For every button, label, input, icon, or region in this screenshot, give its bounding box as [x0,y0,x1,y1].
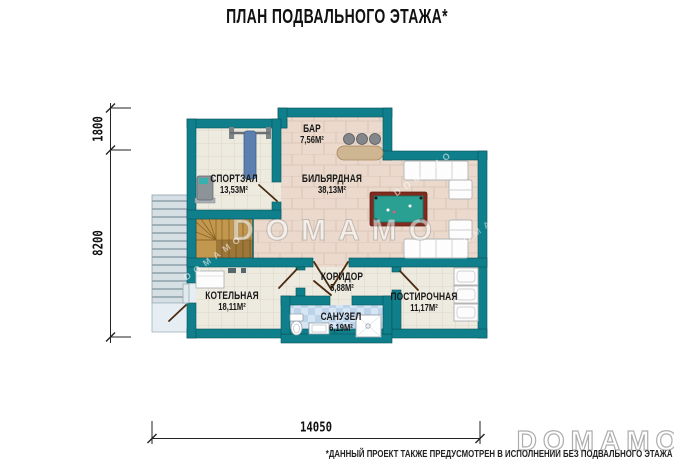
room-label-boiler: КОТЕЛЬНАЯ 18,11М² [205,291,259,313]
room-label-gym: СПОРТЗАЛ 13,53М² [210,174,258,196]
room-name: СПОРТЗАЛ [210,174,258,185]
exterior-stairs [152,195,188,332]
room-label-laundry: ПОСТИРОЧНАЯ 11,17М² [390,292,457,314]
toilet [290,314,303,335]
room-area: 13,53М² [210,185,258,196]
dimension-bottom: 14050 [300,421,332,436]
room-area: 7,56М² [300,135,324,146]
room-name: САНУЗЕЛ [321,312,362,323]
bar-stools [344,134,381,145]
room-area: 18,11М² [205,302,259,313]
room-area: 38,13М² [302,185,362,196]
room-label-bathroom: САНУЗЕЛ 6,19М² [321,312,362,334]
room-label-bar: БАР 7,56М² [300,124,324,146]
room-label-billiard: БИЛЬЯРДНАЯ 38,13М² [302,174,362,196]
entrance-door-leaf [183,284,189,303]
room-name: КОРИДОР [321,272,363,283]
room-name: БИЛЬЯРДНАЯ [302,174,362,185]
interior-stairs [196,219,254,258]
room-name: БАР [300,124,324,135]
room-label-corridor: КОРИДОР 5,88М² [321,272,363,294]
dimension-left-top: 1800 [92,116,107,142]
room-area: 5,88М² [321,283,363,294]
room-name: ПОСТИРОЧНАЯ [390,292,457,303]
stairs-edge [252,219,254,258]
bar-counter [337,146,383,160]
footnote: *ДАННЫЙ ПРОЕКТ ТАКЖЕ ПРЕДУСМОТРЕН В ИСПО… [325,449,672,460]
room-name: КОТЕЛЬНАЯ [205,291,259,302]
laundry-cabinet [454,268,478,321]
room-area: 6,19М² [321,323,362,334]
dimension-left-bottom: 8200 [92,230,107,256]
billiard-table [370,192,427,226]
room-area: 11,17М² [390,303,457,314]
boiler-unit [196,271,224,288]
floorplan-page: ПЛАН ПОДВАЛЬНОГО ЭТАЖА* [0,0,674,470]
